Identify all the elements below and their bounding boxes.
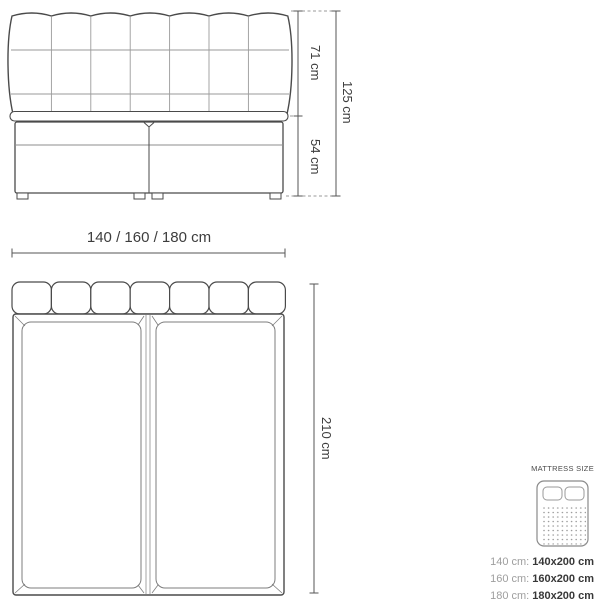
top-view-dimension-line bbox=[310, 284, 319, 593]
dim-label-base-height: 54 cm bbox=[308, 139, 323, 174]
bed-dimensions-diagram: 71 cm 54 cm 125 cm 140 / 160 / 180 cm 21… bbox=[0, 0, 602, 610]
legend-label: 160 cm: bbox=[490, 573, 529, 585]
legend-row-140: 140 cm:140x200 cm bbox=[490, 554, 594, 571]
bed-frame-top bbox=[13, 314, 284, 595]
mattress-size-legend: 140 cm:140x200 cm 160 cm:160x200 cm 180 … bbox=[490, 554, 594, 605]
legend-value: 140x200 cm bbox=[532, 556, 594, 568]
legend-title: MATTRESS SIZE bbox=[531, 464, 594, 473]
legend-row-180: 180 cm:180x200 cm bbox=[490, 588, 594, 605]
legend-row-160: 160 cm:160x200 cm bbox=[490, 571, 594, 588]
dim-label-length: 210 cm bbox=[319, 417, 334, 460]
dim-label-width: 140 / 160 / 180 cm bbox=[0, 229, 298, 246]
mattress-icon bbox=[537, 481, 588, 546]
headboard-top-cushions bbox=[12, 282, 285, 314]
legend-value: 160x200 cm bbox=[532, 573, 594, 585]
legend-label: 180 cm: bbox=[490, 590, 529, 602]
diagram-linework bbox=[0, 0, 602, 610]
mattress-dots-texture bbox=[542, 505, 586, 545]
legend-label: 140 cm: bbox=[490, 556, 529, 568]
mattress-strip-front bbox=[10, 112, 288, 122]
bed-front-view bbox=[8, 13, 292, 199]
dim-label-headboard-height: 71 cm bbox=[308, 45, 323, 80]
legend-value: 180x200 cm bbox=[532, 590, 594, 602]
headboard-front-outline bbox=[8, 13, 292, 114]
dim-label-total-height: 125 cm bbox=[340, 81, 355, 124]
bed-feet bbox=[17, 193, 281, 199]
bed-top-view bbox=[12, 282, 285, 595]
